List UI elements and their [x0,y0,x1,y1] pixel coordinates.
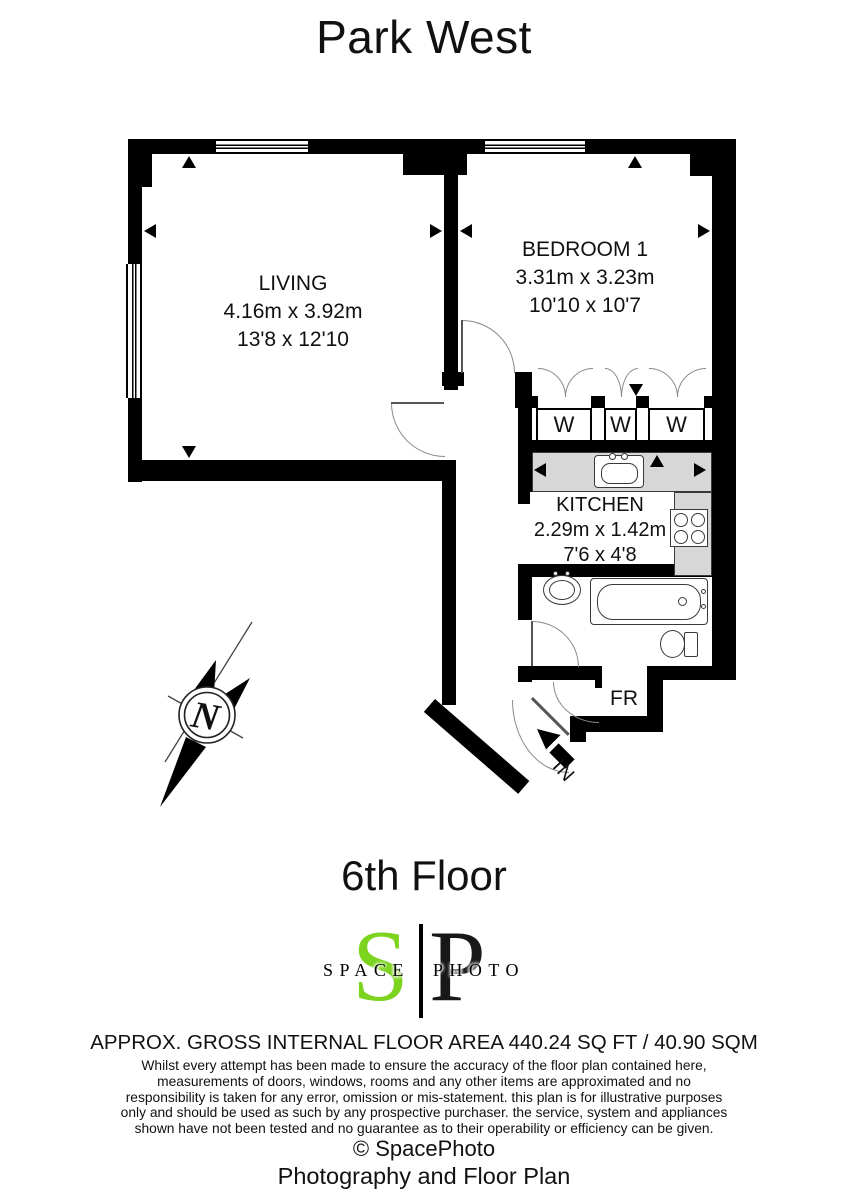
logo-wordmark: SPACE PHOTO [0,960,848,981]
toilet-bowl [660,630,685,658]
wall-top-living-b [308,139,403,154]
wardrobe3-door-arc [649,368,678,397]
wall-divide-living-bedroom [444,154,458,390]
living-room-metric: 4.16m x 3.92m [173,298,413,326]
kitchen-tap-icon [609,453,616,460]
wall-wardrobe-jamb-d [704,396,718,408]
floor-area-line: APPROX. GROSS INTERNAL FLOOR AREA 440.24… [0,1031,848,1055]
disclaimer-line-5: shown have not been tested and no guaran… [0,1121,848,1137]
living-dim-arrow-up-icon [182,156,196,168]
kitchen-metric: 2.29m x 1.42m [530,518,670,543]
bedroom-metric: 3.31m x 3.23m [465,264,705,292]
living-door-arc [391,403,445,457]
wall-living-bottom [128,460,456,481]
kitchen-imperial: 7'6 x 4'8 [530,543,670,568]
disclaimer-line: Whilst every attempt has been made to en… [0,1058,848,1074]
living-door-leaf [391,402,444,404]
bathroom-door-leaf [531,621,533,666]
wall-wardrobe-jamb-b [591,396,605,408]
wardrobe-label: W [554,412,575,437]
bathtub-tap-icon [701,589,706,594]
bathroom-door-arc [532,621,579,667]
bedroom-dim-arrow-up-icon [628,156,642,168]
wardrobe2-door-arc [605,368,622,397]
window-living-top [216,139,308,154]
floor-label: 6th Floor [0,852,848,900]
kitchen-dim-arrow-left-icon [534,463,546,477]
disclaimer-line-4: only and should be used as such by any p… [0,1105,848,1121]
bathtub-tap-icon-2 [701,604,706,609]
living-room-label: LIVING 4.16m x 3.92m 13'8 x 12'10 [173,270,413,354]
living-room-imperial: 13'8 x 12'10 [173,326,413,354]
kitchen-name: KITCHEN [530,493,670,518]
wall-top-bedroom-b [585,139,690,154]
living-dim-arrow-left-icon [144,224,156,238]
hob-burner-icon-3 [674,530,688,544]
compass-north-icon: N [148,610,270,818]
wardrobe-box-3: W [648,408,705,442]
wardrobe-label-3: W [666,412,687,437]
hob-burner-icon-4 [691,530,705,544]
wardrobe-box: W [536,408,592,442]
bath-tap-icon-2 [565,571,570,576]
fr-label: FR [600,687,648,711]
living-dim-arrow-right-icon [430,224,442,238]
wardrobe-box-2: W [604,408,637,442]
wall-kitchen-left-upper [518,408,532,504]
kitchen-dim-arrow-right-icon [694,463,706,477]
wall-corridor-west [442,460,456,705]
wall-right [712,150,736,680]
kitchen-dim-arrow-up-icon [650,455,664,467]
wall-wardrobe-jamb-c [636,396,649,408]
bedroom-dim-arrow-down-icon [629,384,643,396]
window-bedroom-top [485,139,585,154]
disclaimer-line-3: responsibility is taken for any error, o… [0,1090,848,1106]
copyright-line: © SpacePhoto [0,1136,848,1162]
living-dim-arrow-down-icon [182,446,196,458]
bedroom-door-arc [462,320,515,373]
living-room-name: LIVING [173,270,413,298]
kitchen-sink-basin [601,463,638,484]
floorplan-canvas: W W W LIVING 4.16m x 3.92m 13'8 x 12'10 … [0,0,848,848]
tagline-line: Photography and Floor Plan [0,1163,848,1190]
wardrobe1-door-arc [538,368,566,397]
wall-left-upper [128,139,142,264]
hob-burner-icon-2 [691,513,705,527]
wall-bathroom-bottom-left [518,666,602,680]
bedroom-name: BEDROOM 1 [465,236,705,264]
bathtub-drain-icon [678,597,687,606]
bedroom-label: BEDROOM 1 3.31m x 3.23m 10'10 x 10'7 [465,236,705,320]
bath-sink-basin [549,580,575,600]
bath-tap-icon [553,571,558,576]
wall-bedroom-door-stub [442,372,464,386]
wall-top-bedroom-a [467,139,485,154]
wardrobe-label-2: W [610,412,631,437]
bedroom-door-leaf [461,320,463,373]
disclaimer-line-2: measurements of doors, windows, rooms an… [0,1074,848,1090]
kitchen-label: KITCHEN 2.29m x 1.42m 7'6 x 4'8 [530,493,670,568]
bedroom-imperial: 10'10 x 10'7 [465,292,705,320]
wall-wardrobe-jamb-a [518,396,538,408]
toilet-tank [684,632,698,657]
wardrobe3-door-arc-2 [677,368,706,397]
wardrobe1-door-arc-2 [565,368,593,397]
hob-burner-icon [674,513,688,527]
kitchen-tap-icon-2 [621,453,628,460]
window-living-left [126,264,142,398]
